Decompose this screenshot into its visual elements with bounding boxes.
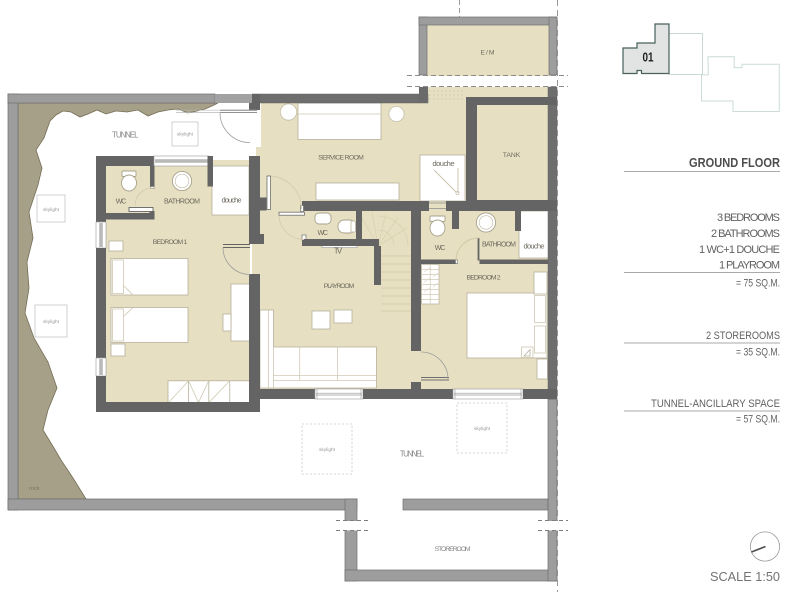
svg-text:01: 01 xyxy=(643,51,654,65)
svg-text:skylight: skylight xyxy=(177,132,194,137)
svg-text:douche: douche xyxy=(433,159,455,168)
svg-text:BATHROOM: BATHROOM xyxy=(482,242,516,249)
svg-text:2 BATHROOMS: 2 BATHROOMS xyxy=(711,228,780,240)
svg-text:WC: WC xyxy=(435,245,446,252)
svg-text:PLAYROOM: PLAYROOM xyxy=(324,283,355,290)
svg-text:TANK: TANK xyxy=(503,152,521,159)
svg-text:= 57 SQ.M.: = 57 SQ.M. xyxy=(736,414,780,426)
svg-text:TV: TV xyxy=(334,247,343,256)
svg-text:TUNNEL: TUNNEL xyxy=(400,449,425,458)
svg-text:BEDROOM 1: BEDROOM 1 xyxy=(153,239,188,246)
svg-text:skylight: skylight xyxy=(43,207,60,212)
svg-text:douche: douche xyxy=(524,242,545,251)
svg-text:GROUND FLOOR: GROUND FLOOR xyxy=(689,156,780,170)
svg-text:1 PLAYROOM: 1 PLAYROOM xyxy=(719,260,780,272)
svg-text:WC: WC xyxy=(116,199,127,206)
svg-text:skylight: skylight xyxy=(319,447,336,452)
svg-text:BATHROOM: BATHROOM xyxy=(164,199,200,206)
svg-text:1 WC+1 DOUCHE: 1 WC+1 DOUCHE xyxy=(699,244,780,256)
svg-text:skylight: skylight xyxy=(474,426,491,431)
svg-text:douche: douche xyxy=(222,196,242,205)
svg-text:skylight: skylight xyxy=(43,319,60,324)
svg-text:BEDROOM 2: BEDROOM 2 xyxy=(467,275,501,282)
svg-text:WC: WC xyxy=(317,230,328,237)
svg-text:TUNNEL-ANCILLARY SPACE: TUNNEL-ANCILLARY SPACE xyxy=(651,398,780,410)
svg-text:= 35 SQ.M.: = 35 SQ.M. xyxy=(736,347,780,359)
svg-text:E/M: E/M xyxy=(481,50,495,57)
svg-text:2 STOREROOMS: 2 STOREROOMS xyxy=(706,330,780,342)
svg-text:SERVICE ROOM: SERVICE ROOM xyxy=(318,155,364,162)
svg-text:= 75 SQ.M.: = 75 SQ.M. xyxy=(736,278,780,290)
svg-text:SCALE 1:50: SCALE 1:50 xyxy=(710,570,780,584)
svg-text:TUNNEL: TUNNEL xyxy=(112,131,139,140)
svg-text:rock: rock xyxy=(29,486,40,492)
svg-text:STOREROOM: STOREROOM xyxy=(435,546,471,553)
svg-text:3 BEDROOMS: 3 BEDROOMS xyxy=(717,212,780,224)
